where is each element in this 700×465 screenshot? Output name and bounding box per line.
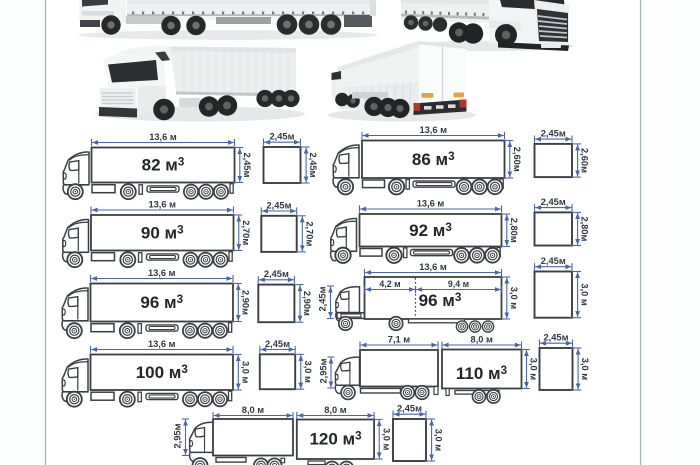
svg-text:13,6 м: 13,6 м bbox=[149, 132, 177, 142]
svg-text:100 м3: 100 м3 bbox=[136, 363, 189, 382]
svg-text:13,6 м: 13,6 м bbox=[417, 198, 445, 208]
svg-text:2,45м: 2,45м bbox=[541, 129, 566, 139]
svg-text:7,1 м: 7,1 м bbox=[388, 334, 411, 344]
svg-text:13,6 м: 13,6 м bbox=[148, 339, 176, 349]
svg-text:13,6 м: 13,6 м bbox=[148, 268, 176, 278]
svg-text:2,45м: 2,45м bbox=[397, 404, 422, 414]
svg-text:2,70м: 2,70м bbox=[304, 221, 314, 246]
svg-text:2,70м: 2,70м bbox=[241, 220, 251, 245]
svg-text:8,0 м: 8,0 м bbox=[324, 405, 347, 415]
svg-text:3,0 м: 3,0 м bbox=[580, 358, 590, 381]
svg-text:2,95м: 2,95м bbox=[173, 423, 183, 448]
svg-text:3,0 м: 3,0 м bbox=[509, 287, 519, 310]
svg-text:2,60м: 2,60м bbox=[512, 147, 522, 172]
svg-text:2,45м: 2,45м bbox=[318, 286, 328, 311]
svg-text:2,45м: 2,45м bbox=[541, 197, 566, 207]
svg-text:2,45м: 2,45м bbox=[264, 269, 289, 279]
svg-text:9,4 м: 9,4 м bbox=[448, 279, 469, 289]
svg-text:2,45м: 2,45м bbox=[308, 153, 318, 178]
svg-text:3,0 м: 3,0 м bbox=[303, 361, 313, 384]
svg-text:13,6 м: 13,6 м bbox=[419, 262, 447, 272]
svg-text:120 м3: 120 м3 bbox=[309, 430, 362, 449]
svg-text:3,0 м: 3,0 м bbox=[381, 428, 391, 451]
svg-text:2,45м: 2,45м bbox=[270, 132, 295, 142]
svg-text:3,0 м: 3,0 м bbox=[240, 361, 250, 384]
svg-text:2,80м: 2,80м bbox=[509, 218, 519, 243]
svg-text:2,45м: 2,45м bbox=[544, 333, 569, 343]
svg-text:8,0 м: 8,0 м bbox=[471, 334, 494, 344]
svg-text:2,90м: 2,90м bbox=[240, 290, 250, 315]
svg-text:3,0 м: 3,0 м bbox=[580, 283, 590, 306]
svg-text:13,6 м: 13,6 м bbox=[419, 125, 447, 135]
svg-text:13,6 м: 13,6 м bbox=[148, 199, 176, 209]
svg-text:110 м3: 110 м3 bbox=[456, 364, 508, 383]
svg-text:2,80м: 2,80м bbox=[580, 216, 590, 241]
svg-text:3,0 м: 3,0 м bbox=[434, 429, 444, 452]
svg-text:2,45м: 2,45м bbox=[541, 256, 566, 266]
svg-text:2,45м: 2,45м bbox=[242, 153, 252, 178]
svg-text:3,0 м: 3,0 м bbox=[529, 358, 539, 381]
svg-text:8,0 м: 8,0 м bbox=[242, 405, 265, 415]
svg-text:2,60м: 2,60м bbox=[580, 148, 590, 173]
svg-text:2,95м: 2,95м bbox=[318, 358, 328, 383]
svg-text:2,45м: 2,45м bbox=[267, 200, 292, 210]
svg-text:4,2 м: 4,2 м bbox=[379, 279, 400, 289]
svg-text:2,90м: 2,90м bbox=[302, 291, 312, 316]
svg-text:2,45м: 2,45м bbox=[265, 339, 290, 349]
